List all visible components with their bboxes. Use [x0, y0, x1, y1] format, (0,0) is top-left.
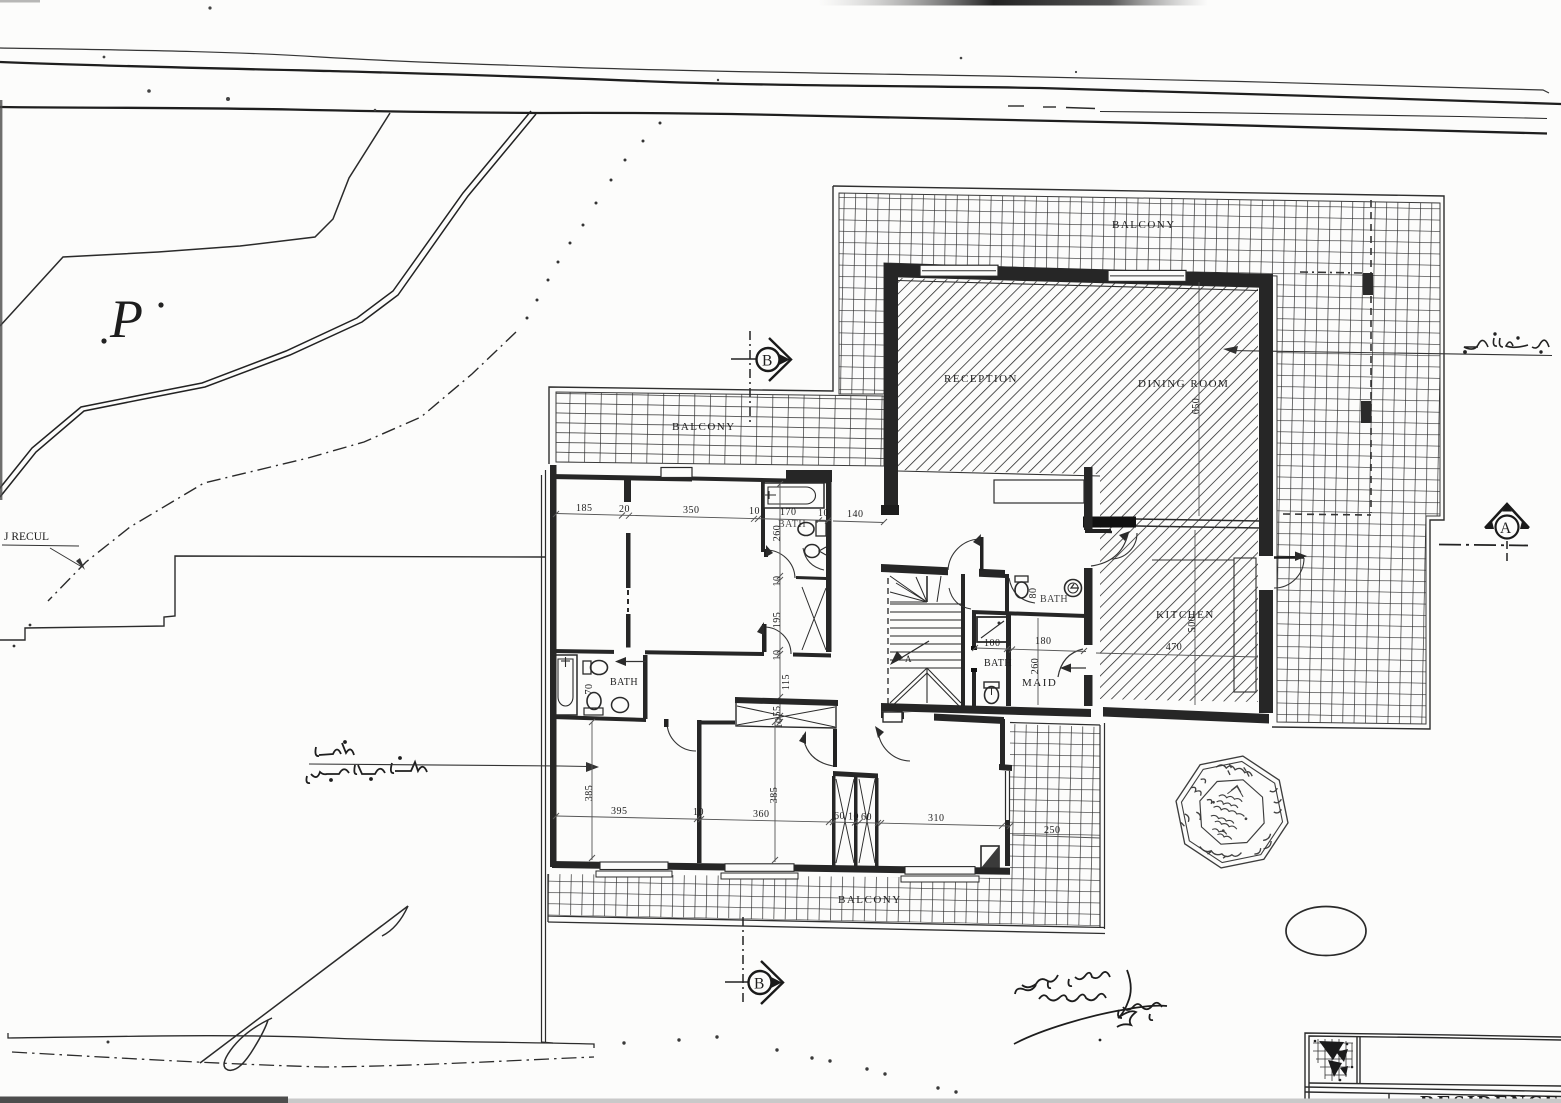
svg-text:250: 250	[1044, 825, 1061, 836]
svg-text:260: 260	[772, 525, 783, 542]
svg-text:650: 650	[1191, 398, 1202, 415]
svg-text:BATH: BATH	[610, 677, 638, 688]
svg-text:170: 170	[780, 507, 797, 518]
svg-text:B: B	[754, 976, 764, 993]
svg-text:10: 10	[848, 812, 859, 823]
svg-text:470: 470	[1166, 642, 1183, 653]
svg-text:10: 10	[772, 650, 783, 661]
svg-text:395: 395	[611, 806, 628, 817]
svg-text:A: A	[905, 654, 912, 664]
svg-text:KITCHEN: KITCHEN	[1156, 609, 1215, 621]
svg-text:J RECUL: J RECUL	[4, 531, 49, 543]
svg-text:BALCONY: BALCONY	[672, 421, 736, 433]
svg-text:80: 80	[1028, 588, 1039, 599]
svg-text:20: 20	[619, 504, 630, 515]
svg-text:350: 350	[683, 505, 700, 516]
svg-text:BATH: BATH	[1040, 594, 1068, 605]
svg-text:385: 385	[584, 785, 595, 802]
svg-text:BALCONY: BALCONY	[838, 894, 902, 906]
svg-text:B: B	[762, 353, 772, 370]
svg-text:180: 180	[1035, 636, 1052, 647]
svg-text:195: 195	[772, 612, 783, 629]
svg-text:P: P	[109, 289, 143, 349]
svg-text:DINING ROOM: DINING ROOM	[1138, 378, 1229, 390]
svg-text:70: 70	[584, 684, 595, 695]
svg-text:260: 260	[1030, 658, 1041, 675]
svg-text:RECEPTION: RECEPTION	[944, 373, 1018, 385]
svg-text:BALCONY: BALCONY	[1112, 219, 1176, 231]
svg-text:BATH: BATH	[984, 658, 1012, 669]
svg-text:10: 10	[749, 506, 760, 517]
svg-text:MAID: MAID	[1022, 677, 1057, 689]
svg-text:60: 60	[861, 812, 872, 823]
svg-text:10: 10	[772, 576, 783, 587]
svg-text:A: A	[1500, 520, 1512, 537]
svg-text:10: 10	[693, 807, 704, 818]
svg-text:310: 310	[928, 813, 945, 824]
svg-text:500: 500	[1187, 616, 1198, 633]
svg-text:385: 385	[769, 787, 780, 804]
svg-text:140: 140	[847, 509, 864, 520]
svg-text:100: 100	[984, 638, 1001, 649]
svg-text:115: 115	[781, 674, 792, 690]
svg-text:185: 185	[576, 503, 593, 514]
svg-text:10: 10	[818, 508, 829, 519]
svg-text:60: 60	[834, 811, 845, 822]
svg-text:360: 360	[753, 809, 770, 820]
